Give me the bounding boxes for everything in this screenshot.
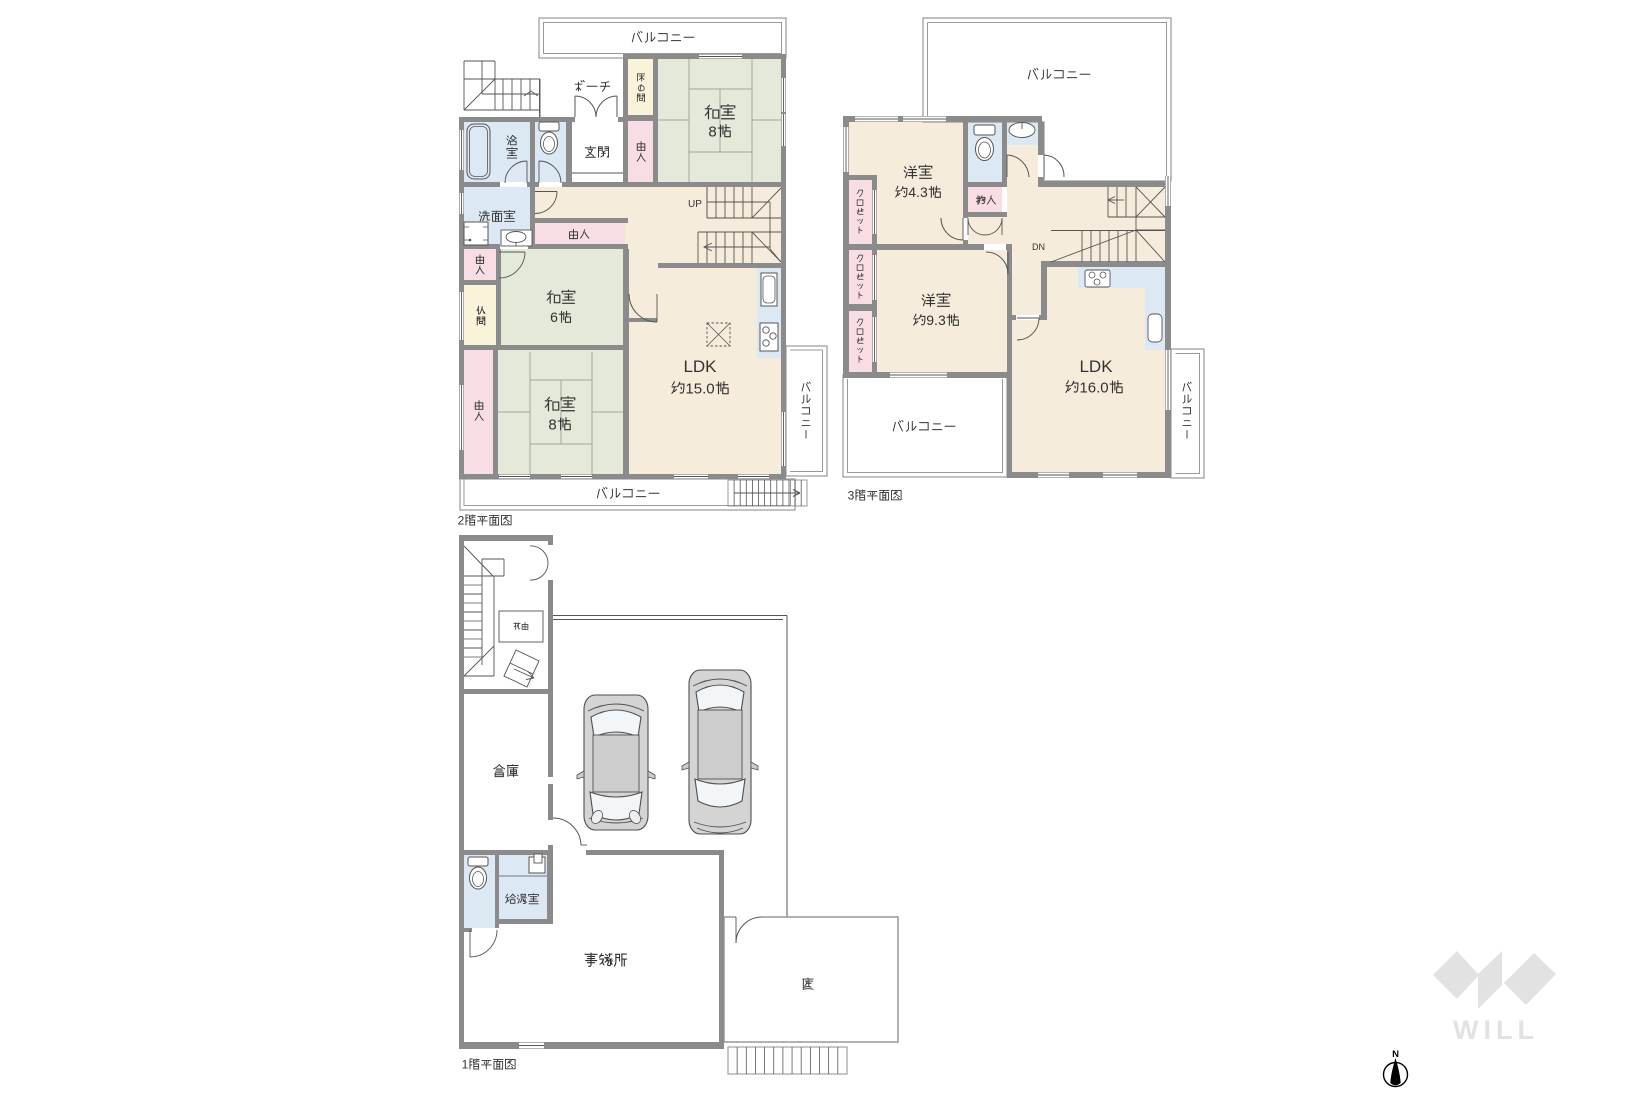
svg-text:6: 6 [550, 309, 558, 325]
svg-text:LDK: LDK [1079, 357, 1113, 376]
svg-text:15.0: 15.0 [685, 380, 714, 397]
svg-text:LDK: LDK [683, 357, 717, 376]
svg-text:8: 8 [708, 123, 716, 140]
svg-text:N: N [1392, 1049, 1399, 1060]
svg-text:1: 1 [462, 1057, 469, 1071]
svg-text:UP: UP [688, 199, 702, 210]
svg-text:DN: DN [1032, 242, 1045, 252]
svg-text:3: 3 [848, 488, 855, 502]
svg-text:4.3: 4.3 [908, 184, 928, 200]
svg-text:16.0: 16.0 [1079, 379, 1108, 396]
svg-text:8: 8 [548, 416, 556, 433]
svg-text:9.3: 9.3 [926, 312, 946, 328]
svg-text:WILL: WILL [1453, 1015, 1539, 1045]
svg-text:2: 2 [458, 513, 465, 527]
